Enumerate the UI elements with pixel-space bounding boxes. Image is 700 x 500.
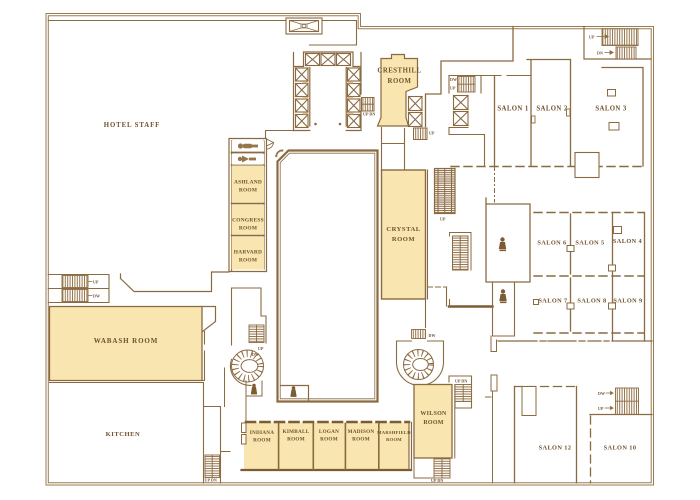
svg-text:HARVARD: HARVARD <box>234 250 262 256</box>
svg-text:UP DN: UP DN <box>363 112 375 117</box>
svg-text:SALON 7: SALON 7 <box>538 298 567 305</box>
svg-text:DW: DW <box>93 294 100 299</box>
svg-text:ROOM: ROOM <box>239 188 257 194</box>
svg-text:ROOM: ROOM <box>239 258 257 264</box>
svg-text:UP DN: UP DN <box>431 478 443 483</box>
svg-text:DW: DW <box>429 333 436 338</box>
svg-text:ROOM: ROOM <box>423 420 443 426</box>
svg-text:UP: UP <box>93 280 99 285</box>
svg-text:SALON 3: SALON 3 <box>595 106 627 113</box>
svg-text:DW: DW <box>450 77 457 82</box>
svg-text:SALON 6: SALON 6 <box>537 240 566 247</box>
svg-text:UP: UP <box>258 346 264 351</box>
svg-text:UP: UP <box>589 35 595 40</box>
svg-text:UP: UP <box>598 406 604 411</box>
svg-text:ROOM: ROOM <box>392 236 416 243</box>
svg-text:HOTEL STAFF: HOTEL STAFF <box>104 122 160 129</box>
svg-text:ROOM: ROOM <box>320 437 338 443</box>
svg-text:CRYSTAL: CRYSTAL <box>386 226 420 233</box>
svg-text:ROOM: ROOM <box>352 437 370 443</box>
svg-text:DN: DN <box>597 51 603 56</box>
svg-text:ROOM: ROOM <box>388 78 412 85</box>
svg-text:INDIANA: INDIANA <box>250 430 275 436</box>
svg-text:CONGRESS: CONGRESS <box>232 218 264 224</box>
svg-text:WILSON: WILSON <box>420 411 447 417</box>
svg-text:UP DN: UP DN <box>455 379 467 384</box>
svg-text:MADISON: MADISON <box>348 429 375 435</box>
svg-text:DW: DW <box>598 391 605 396</box>
svg-text:ROOM: ROOM <box>239 226 257 232</box>
svg-text:CRESTHILL: CRESTHILL <box>377 68 421 75</box>
svg-text:ROOM: ROOM <box>253 438 271 444</box>
svg-text:SALON 4: SALON 4 <box>613 238 643 245</box>
svg-text:UP: UP <box>450 86 456 91</box>
svg-text:SALON 9: SALON 9 <box>613 298 642 305</box>
svg-text:WABASH ROOM: WABASH ROOM <box>94 337 159 345</box>
svg-text:SALON 12: SALON 12 <box>539 445 572 452</box>
svg-text:LOGAN: LOGAN <box>319 429 339 435</box>
svg-text:UP: UP <box>429 131 435 136</box>
svg-text:SALON 1: SALON 1 <box>497 106 529 113</box>
svg-text:UP DN: UP DN <box>205 478 217 483</box>
svg-text:SALON 10: SALON 10 <box>604 445 637 452</box>
svg-text:SALON 8: SALON 8 <box>577 298 606 305</box>
svg-text:KITCHEN: KITCHEN <box>106 431 141 438</box>
svg-text:SALON 5: SALON 5 <box>575 240 604 247</box>
svg-text:ASHLAND: ASHLAND <box>234 180 262 186</box>
svg-text:SALON 2: SALON 2 <box>536 106 568 113</box>
svg-text:MARSHFIELD: MARSHFIELD <box>377 430 411 435</box>
svg-text:KIMBALL: KIMBALL <box>283 429 310 435</box>
svg-text:ROOM: ROOM <box>386 437 402 442</box>
svg-text:ROOM: ROOM <box>287 437 305 443</box>
svg-text:UP: UP <box>440 217 446 222</box>
